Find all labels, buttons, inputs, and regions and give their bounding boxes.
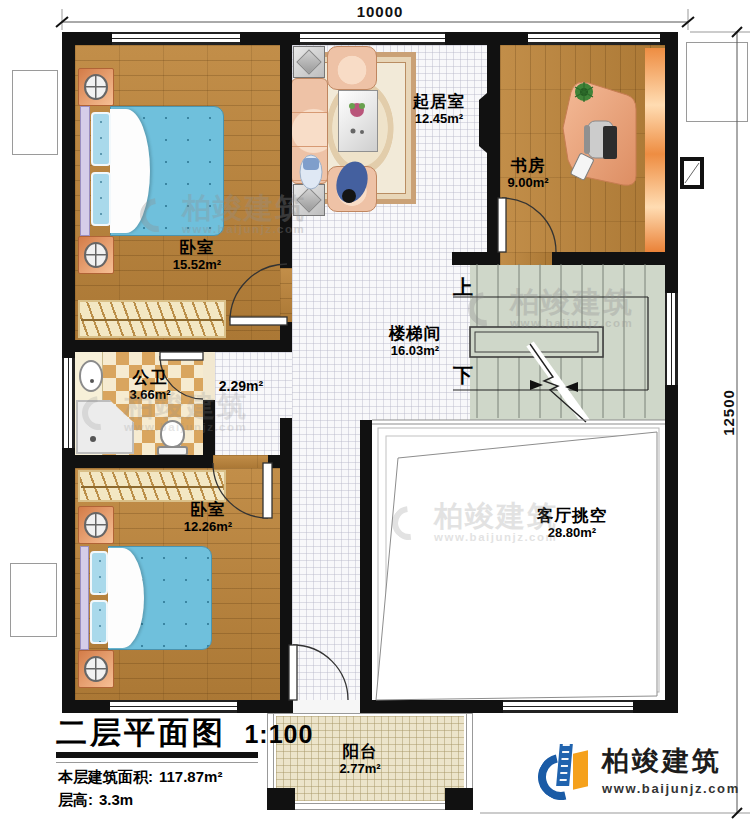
floor-height-label: 层高:: [58, 791, 93, 808]
floor-area-line: 本层建筑面积:117.87m²: [58, 768, 318, 787]
brand-name: 柏竣建筑: [602, 748, 740, 775]
floor-area-value: 117.87m²: [159, 768, 222, 785]
plan-title: 二层平面图: [56, 712, 226, 754]
floor-plan: 卧室 15.52m² 起居室 12.45m² 书房 9.00m² 楼梯间 16.…: [0, 0, 750, 826]
ac-unit-icon: [682, 159, 702, 187]
brand-building-icon: [573, 750, 588, 790]
title-underline-thin: [56, 762, 258, 763]
void-outline: [372, 420, 665, 700]
stairs-up-label: 上: [453, 274, 473, 301]
dimension-top: 10000: [335, 3, 425, 20]
floor-area-label: 本层建筑面积:: [58, 768, 153, 785]
title-block: 二层平面图 1:100: [56, 712, 376, 754]
tv-icon: [479, 93, 487, 153]
plan-linework: [0, 0, 750, 826]
brand-logo-icon: [538, 742, 596, 804]
study-desk-set: [563, 82, 636, 185]
living-room-figures: [300, 155, 373, 207]
brand-website: www.baijunjz.com: [602, 781, 740, 796]
stairs-down-label: 下: [453, 362, 473, 389]
brand-logo: 柏竣建筑 www.baijunjz.com: [538, 738, 738, 823]
dimension-right: 12500: [720, 382, 737, 444]
plan-scale: 1:100: [244, 720, 313, 749]
coffee-table-decor: [349, 103, 365, 134]
title-underline-thick: [56, 752, 258, 758]
floor-height-line: 层高:3.3m: [58, 791, 318, 810]
floor-info: 本层建筑面积:117.87m² 层高:3.3m: [58, 764, 318, 810]
floor-height-value: 3.3m: [99, 791, 133, 808]
